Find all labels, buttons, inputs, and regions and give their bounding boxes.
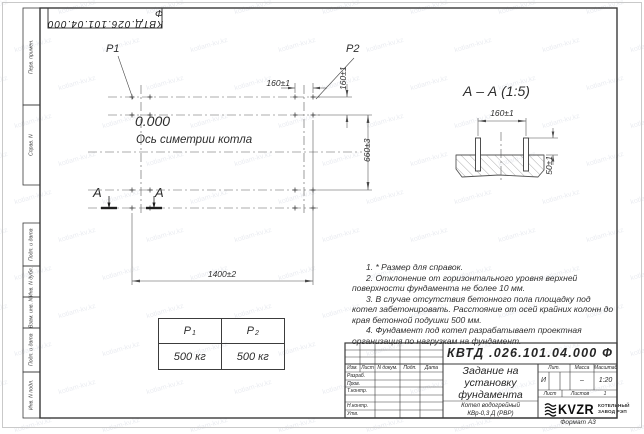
scale-label: Масштаб bbox=[594, 366, 617, 371]
notes-block: 1. * Размер для справок. 2. Отклонение о… bbox=[352, 262, 616, 346]
dim-text-1400: 1400±2 bbox=[192, 270, 252, 279]
dim-text-160h: 160±1 bbox=[258, 79, 290, 88]
header-podp: Подп. bbox=[400, 366, 420, 371]
row-prov: Пров. bbox=[347, 382, 360, 387]
note-1: 1. * Размер для справок. bbox=[352, 262, 616, 273]
coil-icon bbox=[545, 404, 556, 416]
scale-value: 1:20 bbox=[594, 377, 617, 384]
load-leaders bbox=[118, 56, 354, 99]
lit-label: Лит. bbox=[538, 366, 570, 371]
section-dim-text-50: 50±1 bbox=[545, 149, 554, 181]
loads-header-p2: P2 bbox=[222, 319, 285, 344]
dim-text-660: 660±3 bbox=[363, 131, 372, 169]
loads-value-p2: 500 кг bbox=[222, 344, 285, 369]
row-tkontr: Т.контр. bbox=[347, 389, 367, 394]
stamp-sprav-n: Справ. N bbox=[23, 105, 40, 185]
company-logo: KVZR bbox=[558, 402, 594, 416]
doc-number-rotated: КВТД.026.101.04.000 Ф bbox=[48, 8, 162, 28]
stamp-inv-dubl: Инв. N дубл. bbox=[23, 266, 40, 297]
product-name-line1: Котел водогрейный bbox=[443, 403, 538, 409]
p2-base: P bbox=[247, 325, 254, 337]
plan-centerlines bbox=[88, 85, 501, 216]
header-data: Дата bbox=[420, 366, 443, 371]
sheets-label: Листов bbox=[565, 392, 595, 397]
section-letter-right: А bbox=[155, 186, 164, 199]
section-view bbox=[456, 118, 558, 177]
dim-text-160v: 160±1 bbox=[339, 58, 348, 98]
section-cut-marks bbox=[101, 196, 162, 209]
header-list: Лист bbox=[360, 366, 375, 371]
stamp-perv-primen: Перв. примен. bbox=[23, 8, 40, 105]
titleblock-title-line3: фундамента bbox=[443, 390, 538, 401]
section-dim-160 bbox=[478, 118, 526, 136]
mass-label: Масса bbox=[570, 366, 594, 371]
titleblock-designation: КВТД .026.101.04.000 Ф bbox=[445, 347, 615, 360]
mass-value: – bbox=[570, 377, 594, 384]
header-izm: Изм. bbox=[345, 366, 360, 371]
row-razrab: Разраб. bbox=[347, 374, 365, 379]
concrete-pad bbox=[456, 155, 544, 177]
stamp-podp-data-1: Подп. и дата bbox=[23, 223, 40, 266]
product-name-line2: КВр-0,3 Д (РВР) bbox=[443, 411, 538, 417]
lit-value: И bbox=[538, 377, 549, 384]
p2-sub: 2 bbox=[255, 330, 259, 337]
sheet-label: Лист bbox=[538, 392, 562, 397]
note-3: 3. В случае отсутствия бетонного пола пл… bbox=[352, 294, 616, 326]
anchor-bolt-right bbox=[524, 138, 529, 171]
stamp-podp-data-2: Подп. и дата bbox=[23, 328, 40, 372]
note-2: 2. Отклонение от горизонтального уровня … bbox=[352, 273, 616, 294]
p1-sub: 1 bbox=[192, 330, 196, 337]
section-dim-text-160: 160±1 bbox=[477, 109, 527, 118]
loads-table: P1 P2 500 кг 500 кг bbox=[158, 318, 285, 370]
company-line1: КОТЕЛЬНЫЙ bbox=[598, 404, 630, 409]
section-title: А – А (1:5) bbox=[463, 84, 530, 98]
note-4: 4. Фундамент под котел разрабатывает про… bbox=[352, 325, 616, 346]
symmetry-axis-label: Ось симетрии котла bbox=[136, 135, 252, 147]
section-letter-left: А bbox=[93, 186, 102, 199]
stamp-inv-podl: Инв. N подл. bbox=[23, 372, 40, 418]
row-nkontr: Н.контр. bbox=[347, 404, 368, 409]
company-line2: ЗАВОД РЭП bbox=[598, 410, 627, 415]
loads-header-p1: P1 bbox=[159, 319, 222, 344]
loads-value-p1: 500 кг bbox=[159, 344, 222, 369]
header-dokum: N докум. bbox=[375, 366, 400, 371]
drawing-sheet: { "colors": { "ink": "#3a3a3a", "waterma… bbox=[0, 0, 644, 430]
elevation-mark: 0.000 bbox=[135, 114, 170, 128]
stamp-vzam-inv: Взам. инв. N bbox=[23, 297, 40, 328]
format-label: Формат А3 bbox=[556, 420, 600, 427]
row-utv: Утв. bbox=[347, 412, 358, 417]
titleblock-title-line2: установку bbox=[443, 378, 538, 389]
load-label-p1: P1 bbox=[106, 44, 119, 55]
titleblock-title-line1: Задание на bbox=[443, 366, 538, 377]
sheets-value: 1 bbox=[598, 392, 612, 397]
load-label-p2: P2 bbox=[346, 44, 359, 55]
p1-base: P bbox=[184, 325, 191, 337]
anchor-bolt-left bbox=[476, 138, 481, 171]
